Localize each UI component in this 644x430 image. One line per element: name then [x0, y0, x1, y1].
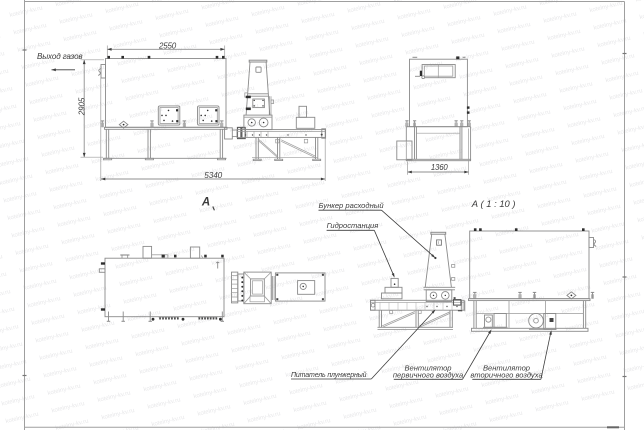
svg-text:kotelny-kv.ru: kotelny-kv.ru	[0, 174, 33, 187]
svg-text:kotelny-kv.ru: kotelny-kv.ru	[55, 419, 89, 430]
svg-text:kotelny-kv.ru: kotelny-kv.ru	[25, 75, 59, 88]
svg-text:kotelny-kv.ru: kotelny-kv.ru	[367, 89, 401, 102]
svg-text:kotelny-kv.ru: kotelny-kv.ru	[359, 54, 393, 67]
svg-text:kotelny-kv.ru: kotelny-kv.ru	[591, 221, 625, 234]
svg-text:kotelny-kv.ru: kotelny-kv.ru	[467, 103, 501, 116]
svg-text:kotelny-kv.ru: kotelny-kv.ru	[581, 389, 615, 402]
svg-text:kotelny-kv.ru: kotelny-kv.ru	[63, 30, 97, 43]
svg-text:kotelny-kv.ru: kotelny-kv.ru	[541, 214, 575, 227]
svg-text:kotelny-kv.ru: kotelny-kv.ru	[47, 384, 81, 397]
svg-text:kotelny-kv.ru: kotelny-kv.ru	[291, 180, 325, 193]
svg-text:kotelny-kv.ru: kotelny-kv.ru	[625, 158, 644, 171]
svg-text:kotelny-kv.ru: kotelny-kv.ru	[435, 386, 469, 399]
svg-text:kotelny-kv.ru: kotelny-kv.ru	[589, 1, 623, 14]
svg-text:kotelny-kv.ru: kotelny-kv.ru	[73, 285, 107, 298]
svg-text:kotelny-kv.ru: kotelny-kv.ru	[521, 127, 555, 140]
svg-text:kotelny-kv.ru: kotelny-kv.ru	[91, 152, 125, 165]
svg-text:kotelny-kv.ru: kotelny-kv.ru	[603, 274, 637, 287]
svg-text:kotelny-kv.ru: kotelny-kv.ru	[307, 250, 341, 263]
svg-text:kotelny-kv.ru: kotelny-kv.ru	[0, 34, 1, 47]
svg-text:kotelny-kv.ru: kotelny-kv.ru	[101, 408, 135, 421]
svg-text:kotelny-kv.ru: kotelny-kv.ru	[639, 8, 644, 21]
svg-text:kotelny-kv.ru: kotelny-kv.ru	[0, 139, 25, 152]
svg-text:kotelny-kv.ru: kotelny-kv.ru	[535, 400, 569, 413]
svg-text:kotelny-kv.ru: kotelny-kv.ru	[119, 275, 153, 288]
svg-text:kotelny-kv.ru: kotelny-kv.ru	[239, 376, 273, 389]
svg-text:kotelny-kv.ru: kotelny-kv.ru	[209, 33, 243, 46]
svg-text:kotelny-kv.ru: kotelny-kv.ru	[405, 43, 439, 56]
svg-text:kotelny-kv.ru: kotelny-kv.ru	[519, 330, 553, 343]
svg-text:kotelny-kv.ru: kotelny-kv.ru	[57, 215, 91, 228]
svg-text:kotelny-kv.ru: kotelny-kv.ru	[317, 82, 351, 95]
svg-text:kotelny-kv.ru: kotelny-kv.ru	[491, 208, 525, 221]
svg-text:kotelny-kv.ru: kotelny-kv.ru	[495, 225, 529, 238]
svg-text:kotelny-kv.ru: kotelny-kv.ru	[389, 397, 423, 410]
svg-text:kotelny-kv.ru: kotelny-kv.ru	[111, 240, 145, 253]
svg-text:kotelny-kv.ru: kotelny-kv.ru	[393, 414, 427, 427]
svg-text:kotelny-kv.ru: kotelny-kv.ru	[351, 19, 385, 32]
svg-text:kotelny-kv.ru: kotelny-kv.ru	[605, 71, 639, 84]
svg-text:А ( 1 : 10 ): А ( 1 : 10 )	[471, 198, 516, 209]
svg-text:kotelny-kv.ru: kotelny-kv.ru	[457, 271, 491, 284]
svg-text:kotelny-kv.ru: kotelny-kv.ru	[449, 236, 483, 249]
svg-text:Выход газов: Выход газов	[37, 52, 83, 61]
svg-text:kotelny-kv.ru: kotelny-kv.ru	[0, 342, 23, 355]
svg-text:kotelny-kv.ru: kotelny-kv.ru	[247, 0, 281, 1]
svg-text:kotelny-kv.ru: kotelny-kv.ru	[353, 239, 387, 252]
svg-text:kotelny-kv.ru: kotelny-kv.ru	[627, 379, 644, 392]
svg-text:kotelny-kv.ru: kotelny-kv.ru	[0, 272, 7, 285]
svg-text:kotelny-kv.ru: kotelny-kv.ru	[229, 121, 263, 134]
svg-text:kotelny-kv.ru: kotelny-kv.ru	[113, 37, 147, 50]
svg-text:kotelny-kv.ru: kotelny-kv.ru	[357, 257, 391, 270]
svg-text:kotelny-kv.ru: kotelny-kv.ru	[99, 187, 133, 200]
svg-text:A: A	[201, 196, 210, 208]
svg-text:kotelny-kv.ru: kotelny-kv.ru	[75, 82, 109, 95]
svg-text:kotelny-kv.ru: kotelny-kv.ru	[423, 334, 457, 347]
svg-text:kotelny-kv.ru: kotelny-kv.ru	[0, 86, 13, 99]
svg-text:kotelny-kv.ru: kotelny-kv.ru	[511, 295, 545, 308]
svg-text:kotelny-kv.ru: kotelny-kv.ru	[147, 397, 181, 410]
svg-text:kotelny-kv.ru: kotelny-kv.ru	[315, 285, 349, 298]
svg-text:первичного воздуха: первичного воздуха	[393, 371, 463, 380]
svg-text:kotelny-kv.ru: kotelny-kv.ru	[81, 320, 115, 333]
svg-text:kotelny-kv.ru: kotelny-kv.ru	[451, 33, 485, 46]
svg-text:kotelny-kv.ru: kotelny-kv.ru	[531, 383, 565, 396]
svg-text:kotelny-kv.ru: kotelny-kv.ru	[635, 0, 644, 4]
svg-text:kotelny-kv.ru: kotelny-kv.ru	[397, 8, 431, 21]
svg-text:kotelny-kv.ru: kotelny-kv.ru	[329, 134, 363, 147]
svg-text:kotelny-kv.ru: kotelny-kv.ru	[197, 404, 231, 417]
svg-text:kotelny-kv.ru: kotelny-kv.ru	[223, 306, 257, 319]
svg-text:kotelny-kv.ru: kotelny-kv.ru	[613, 106, 644, 119]
svg-text:kotelny-kv.ru: kotelny-kv.ru	[411, 281, 445, 294]
svg-text:kotelny-kv.ru: kotelny-kv.ru	[501, 39, 535, 52]
svg-text:kotelny-kv.ru: kotelny-kv.ru	[77, 303, 111, 316]
svg-text:kotelny-kv.ru: kotelny-kv.ru	[287, 162, 321, 175]
svg-text:kotelny-kv.ru: kotelny-kv.ru	[123, 292, 157, 305]
svg-text:kotelny-kv.ru: kotelny-kv.ru	[443, 421, 477, 430]
svg-text:kotelny-kv.ru: kotelny-kv.ru	[325, 117, 359, 130]
svg-text:kotelny-kv.ru: kotelny-kv.ru	[131, 327, 165, 340]
svg-text:kotelny-kv.ru: kotelny-kv.ru	[533, 179, 567, 192]
svg-text:kotelny-kv.ru: kotelny-kv.ru	[0, 377, 31, 390]
svg-text:Гидростанция: Гидростанция	[327, 221, 379, 230]
svg-text:kotelny-kv.ru: kotelny-kv.ru	[15, 244, 49, 257]
svg-text:kotelny-kv.ru: kotelny-kv.ru	[217, 68, 251, 81]
svg-text:kotelny-kv.ru: kotelny-kv.ru	[277, 331, 311, 344]
svg-text:kotelny-kv.ru: kotelny-kv.ru	[45, 163, 79, 176]
svg-text:kotelny-kv.ru: kotelny-kv.ru	[155, 9, 189, 22]
svg-text:kotelny-kv.ru: kotelny-kv.ru	[447, 15, 481, 28]
svg-text:kotelny-kv.ru: kotelny-kv.ru	[185, 352, 219, 365]
svg-text:kotelny-kv.ru: kotelny-kv.ru	[505, 57, 539, 70]
svg-text:kotelny-kv.ru: kotelny-kv.ru	[609, 88, 643, 101]
svg-text:kotelny-kv.ru: kotelny-kv.ru	[193, 387, 227, 400]
svg-text:kotelny-kv.ru: kotelny-kv.ru	[479, 155, 513, 168]
svg-text:kotelny-kv.ru: kotelny-kv.ru	[549, 249, 583, 262]
svg-text:kotelny-kv.ru: kotelny-kv.ru	[611, 309, 644, 322]
svg-text:kotelny-kv.ru: kotelny-kv.ru	[313, 64, 347, 77]
svg-text:kotelny-kv.ru: kotelny-kv.ru	[187, 149, 221, 162]
svg-text:kotelny-kv.ru: kotelny-kv.ru	[547, 29, 581, 42]
svg-text:kotelny-kv.ru: kotelny-kv.ru	[323, 320, 357, 333]
svg-text:kotelny-kv.ru: kotelny-kv.ru	[97, 390, 131, 403]
svg-text:kotelny-kv.ru: kotelny-kv.ru	[0, 307, 15, 320]
svg-text:kotelny-kv.ru: kotelny-kv.ru	[103, 205, 137, 218]
svg-text:kotelny-kv.ru: kotelny-kv.ru	[69, 268, 103, 281]
svg-text:2905: 2905	[78, 97, 87, 116]
svg-text:kotelny-kv.ru: kotelny-kv.ru	[183, 131, 217, 144]
svg-text:kotelny-kv.ru: kotelny-kv.ru	[499, 243, 533, 256]
svg-text:kotelny-kv.ru: kotelny-kv.ru	[233, 138, 267, 151]
svg-text:kotelny-kv.ru: kotelny-kv.ru	[139, 362, 173, 375]
svg-text:kotelny-kv.ru: kotelny-kv.ru	[509, 74, 543, 87]
svg-text:kotelny-kv.ru: kotelny-kv.ru	[441, 201, 475, 214]
svg-text:kotelny-kv.ru: kotelny-kv.ru	[41, 145, 75, 158]
svg-text:kotelny-kv.ru: kotelny-kv.ru	[0, 104, 17, 117]
svg-text:kotelny-kv.ru: kotelny-kv.ru	[385, 379, 419, 392]
svg-text:kotelny-kv.ru: kotelny-kv.ru	[339, 390, 373, 403]
svg-text:kotelny-kv.ru: kotelny-kv.ru	[243, 394, 277, 407]
svg-text:kotelny-kv.ru: kotelny-kv.ru	[257, 243, 291, 256]
svg-text:kotelny-kv.ru: kotelny-kv.ru	[273, 313, 307, 326]
svg-text:kotelny-kv.ru: kotelny-kv.ru	[0, 121, 21, 134]
svg-text:kotelny-kv.ru: kotelny-kv.ru	[27, 296, 61, 309]
svg-text:kotelny-kv.ru: kotelny-kv.ru	[0, 289, 11, 302]
svg-text:kotelny-kv.ru: kotelny-kv.ru	[95, 170, 129, 183]
svg-text:kotelny-kv.ru: kotelny-kv.ru	[3, 191, 37, 204]
svg-text:kotelny-kv.ru: kotelny-kv.ru	[513, 92, 547, 105]
svg-text:kotelny-kv.ru: kotelny-kv.ru	[171, 79, 205, 92]
svg-text:kotelny-kv.ru: kotelny-kv.ru	[537, 197, 571, 210]
svg-text:kotelny-kv.ru: kotelny-kv.ru	[485, 393, 519, 406]
svg-text:kotelny-kv.ru: kotelny-kv.ru	[373, 327, 407, 340]
svg-text:kotelny-kv.ru: kotelny-kv.ru	[245, 191, 279, 204]
svg-text:kotelny-kv.ru: kotelny-kv.ru	[577, 372, 611, 385]
svg-text:kotelny-kv.ru: kotelny-kv.ru	[425, 131, 459, 144]
svg-text:kotelny-kv.ru: kotelny-kv.ru	[437, 183, 471, 196]
svg-text:kotelny-kv.ru: kotelny-kv.ru	[305, 29, 339, 42]
svg-text:kotelny-kv.ru: kotelny-kv.ru	[39, 349, 73, 362]
svg-text:kotelny-kv.ru: kotelny-kv.ru	[263, 57, 297, 70]
svg-text:kotelny-kv.ru: kotelny-kv.ru	[575, 151, 609, 164]
svg-text:kotelny-kv.ru: kotelny-kv.ru	[203, 219, 237, 232]
svg-text:kotelny-kv.ru: kotelny-kv.ru	[565, 319, 599, 332]
svg-text:kotelny-kv.ru: kotelny-kv.ru	[0, 254, 3, 267]
svg-text:kotelny-kv.ru: kotelny-kv.ru	[525, 144, 559, 157]
svg-text:kotelny-kv.ru: kotelny-kv.ru	[0, 51, 5, 64]
svg-text:kotelny-kv.ru: kotelny-kv.ru	[529, 162, 563, 175]
svg-text:5340: 5340	[204, 171, 222, 180]
svg-text:kotelny-kv.ru: kotelny-kv.ru	[421, 113, 455, 126]
svg-text:kotelny-kv.ru: kotelny-kv.ru	[377, 344, 411, 357]
svg-text:kotelny-kv.ru: kotelny-kv.ru	[601, 53, 635, 66]
svg-text:kotelny-kv.ru: kotelny-kv.ru	[61, 233, 95, 246]
svg-text:kotelny-kv.ru: kotelny-kv.ru	[391, 194, 425, 207]
svg-text:kotelny-kv.ru: kotelny-kv.ru	[271, 92, 305, 105]
svg-text:kotelny-kv.ru: kotelny-kv.ru	[375, 124, 409, 137]
svg-text:kotelny-kv.ru: kotelny-kv.ru	[471, 120, 505, 133]
svg-text:kotelny-kv.ru: kotelny-kv.ru	[311, 267, 345, 280]
svg-text:kotelny-kv.ru: kotelny-kv.ru	[275, 110, 309, 123]
svg-text:kotelny-kv.ru: kotelny-kv.ru	[31, 314, 65, 327]
svg-text:kotelny-kv.ru: kotelny-kv.ru	[567, 116, 601, 129]
svg-text:kotelny-kv.ru: kotelny-kv.ru	[253, 226, 287, 239]
svg-text:kotelny-kv.ru: kotelny-kv.ru	[395, 211, 429, 224]
svg-text:kotelny-kv.ru: kotelny-kv.ru	[51, 401, 85, 414]
svg-text:kotelny-kv.ru: kotelny-kv.ru	[289, 383, 323, 396]
svg-text:kotelny-kv.ru: kotelny-kv.ru	[143, 380, 177, 393]
svg-text:kotelny-kv.ru: kotelny-kv.ru	[37, 128, 71, 141]
svg-text:kotelny-kv.ru: kotelny-kv.ru	[159, 26, 193, 39]
svg-text:kotelny-kv.ru: kotelny-kv.ru	[599, 256, 633, 269]
svg-text:kotelny-kv.ru: kotelny-kv.ru	[571, 134, 605, 147]
svg-text:kotelny-kv.ru: kotelny-kv.ru	[9, 5, 43, 18]
svg-text:kotelny-kv.ru: kotelny-kv.ru	[461, 288, 495, 301]
svg-text:kotelny-kv.ru: kotelny-kv.ru	[475, 138, 509, 151]
svg-text:kotelny-kv.ru: kotelny-kv.ru	[523, 348, 557, 361]
svg-text:kotelny-kv.ru: kotelny-kv.ru	[497, 22, 531, 35]
svg-text:kotelny-kv.ru: kotelny-kv.ru	[173, 299, 207, 312]
svg-text:kotelny-kv.ru: kotelny-kv.ru	[319, 302, 353, 315]
svg-text:kotelny-kv.ru: kotelny-kv.ru	[341, 187, 375, 200]
svg-text:kotelny-kv.ru: kotelny-kv.ru	[53, 198, 87, 211]
svg-text:kotelny-kv.ru: kotelny-kv.ru	[553, 267, 587, 280]
svg-text:kotelny-kv.ru: kotelny-kv.ru	[331, 355, 365, 368]
svg-text:kotelny-kv.ru: kotelny-kv.ru	[393, 0, 427, 4]
svg-text:kotelny-kv.ru: kotelny-kv.ru	[251, 5, 285, 18]
svg-text:kotelny-kv.ru: kotelny-kv.ru	[189, 369, 223, 382]
svg-text:2550: 2550	[158, 41, 177, 50]
svg-text:kotelny-kv.ru: kotelny-kv.ru	[551, 46, 585, 59]
svg-text:kotelny-kv.ru: kotelny-kv.ru	[557, 284, 591, 297]
svg-text:kotelny-kv.ru: kotelny-kv.ru	[369, 309, 403, 322]
svg-text:kotelny-kv.ru: kotelny-kv.ru	[121, 72, 155, 85]
svg-text:kotelny-kv.ru: kotelny-kv.ru	[157, 229, 191, 242]
svg-text:kotelny-kv.ru: kotelny-kv.ru	[347, 1, 381, 14]
svg-text:Питатель плунжерный: Питатель плунжерный	[291, 371, 367, 379]
svg-text:kotelny-kv.ru: kotelny-kv.ru	[135, 345, 169, 358]
svg-text:kotelny-kv.ru: kotelny-kv.ru	[153, 212, 187, 225]
svg-text:kotelny-kv.ru: kotelny-kv.ru	[619, 344, 644, 357]
svg-text:kotelny-kv.ru: kotelny-kv.ru	[293, 401, 327, 414]
svg-text:kotelny-kv.ru: kotelny-kv.ru	[303, 232, 337, 245]
svg-text:kotelny-kv.ru: kotelny-kv.ru	[379, 141, 413, 154]
svg-text:kotelny-kv.ru: kotelny-kv.ru	[0, 324, 19, 337]
svg-text:kotelny-kv.ru: kotelny-kv.ru	[87, 135, 121, 148]
svg-text:kotelny-kv.ru: kotelny-kv.ru	[623, 361, 644, 374]
svg-text:kotelny-kv.ru: kotelny-kv.ru	[165, 264, 199, 277]
svg-text:kotelny-kv.ru: kotelny-kv.ru	[141, 159, 175, 172]
svg-text:kotelny-kv.ru: kotelny-kv.ru	[633, 193, 644, 206]
svg-text:kotelny-kv.ru: kotelny-kv.ru	[43, 366, 77, 379]
svg-text:kotelny-kv.ru: kotelny-kv.ru	[583, 186, 617, 199]
svg-text:kotelny-kv.ru: kotelny-kv.ru	[151, 415, 185, 428]
svg-text:kotelny-kv.ru: kotelny-kv.ru	[265, 278, 299, 291]
svg-text:kotelny-kv.ru: kotelny-kv.ru	[29, 93, 63, 106]
svg-text:kotelny-kv.ru: kotelny-kv.ru	[587, 204, 621, 217]
svg-text:kotelny-kv.ru: kotelny-kv.ru	[489, 411, 523, 424]
svg-text:kotelny-kv.ru: kotelny-kv.ru	[563, 99, 597, 112]
svg-text:kotelny-kv.ru: kotelny-kv.ru	[149, 194, 183, 207]
svg-text:kotelny-kv.ru: kotelny-kv.ru	[247, 411, 281, 424]
svg-text:kotelny-kv.ru: kotelny-kv.ru	[617, 123, 644, 136]
svg-text:kotelny-kv.ru: kotelny-kv.ru	[507, 278, 541, 291]
svg-text:kotelny-kv.ru: kotelny-kv.ru	[241, 173, 275, 186]
svg-text:kotelny-kv.ru: kotelny-kv.ru	[387, 176, 421, 189]
svg-text:kotelny-kv.ru: kotelny-kv.ru	[363, 71, 397, 84]
svg-text:kotelny-kv.ru: kotelny-kv.ru	[65, 250, 99, 263]
svg-text:kotelny-kv.ru: kotelny-kv.ru	[181, 334, 215, 347]
svg-text:kotelny-kv.ru: kotelny-kv.ru	[401, 26, 435, 39]
svg-text:kotelny-kv.ru: kotelny-kv.ru	[151, 0, 185, 5]
svg-text:kotelny-kv.ru: kotelny-kv.ru	[371, 106, 405, 119]
svg-text:kotelny-kv.ru: kotelny-kv.ru	[593, 18, 627, 31]
svg-text:kotelny-kv.ru: kotelny-kv.ru	[309, 47, 343, 60]
svg-text:kotelny-kv.ru: kotelny-kv.ru	[343, 407, 377, 420]
svg-text:kotelny-kv.ru: kotelny-kv.ru	[249, 208, 283, 221]
svg-text:kotelny-kv.ru: kotelny-kv.ru	[615, 326, 644, 339]
svg-text:kotelny-kv.ru: kotelny-kv.ru	[455, 50, 489, 63]
svg-text:kotelny-kv.ru: kotelny-kv.ru	[35, 331, 69, 344]
svg-text:kotelny-kv.ru: kotelny-kv.ru	[463, 85, 497, 98]
svg-text:kotelny-kv.ru: kotelny-kv.ru	[107, 222, 141, 235]
svg-text:kotelny-kv.ru: kotelny-kv.ru	[333, 152, 367, 165]
svg-text:kotelny-kv.ru: kotelny-kv.ru	[201, 422, 235, 430]
svg-text:kotelny-kv.ru: kotelny-kv.ru	[89, 355, 123, 368]
svg-text:kotelny-kv.ru: kotelny-kv.ru	[0, 359, 27, 372]
svg-text:kotelny-kv.ru: kotelny-kv.ru	[137, 142, 171, 155]
svg-text:kotelny-kv.ru: kotelny-kv.ru	[5, 412, 39, 425]
svg-text:вторичного воздуха: вторичного воздуха	[470, 371, 542, 380]
svg-text:kotelny-kv.ru: kotelny-kv.ru	[125, 89, 159, 102]
svg-text:kotelny-kv.ru: kotelny-kv.ru	[211, 254, 245, 267]
svg-text:kotelny-kv.ru: kotelny-kv.ru	[321, 99, 355, 112]
svg-text:kotelny-kv.ru: kotelny-kv.ru	[205, 16, 239, 29]
svg-text:kotelny-kv.ru: kotelny-kv.ru	[545, 232, 579, 245]
svg-text:kotelny-kv.ru: kotelny-kv.ru	[403, 246, 437, 259]
svg-text:kotelny-kv.ru: kotelny-kv.ru	[573, 354, 607, 367]
svg-text:kotelny-kv.ru: kotelny-kv.ru	[417, 96, 451, 109]
svg-text:kotelny-kv.ru: kotelny-kv.ru	[23, 279, 57, 292]
svg-text:kotelny-kv.ru: kotelny-kv.ru	[115, 257, 149, 270]
svg-text:kotelny-kv.ru: kotelny-kv.ru	[167, 61, 201, 74]
svg-text:kotelny-kv.ru: kotelny-kv.ru	[225, 103, 259, 116]
svg-text:kotelny-kv.ru: kotelny-kv.ru	[301, 12, 335, 25]
svg-text:kotelny-kv.ru: kotelny-kv.ru	[105, 2, 139, 15]
svg-text:kotelny-kv.ru: kotelny-kv.ru	[11, 226, 45, 239]
svg-text:kotelny-kv.ru: kotelny-kv.ru	[267, 75, 301, 88]
svg-text:Бункер расходный: Бункер расходный	[319, 201, 385, 210]
svg-text:1360: 1360	[431, 163, 448, 172]
svg-text:kotelny-kv.ru: kotelny-kv.ru	[413, 78, 447, 91]
svg-text:kotelny-kv.ru: kotelny-kv.ru	[33, 110, 67, 123]
svg-text:kotelny-kv.ru: kotelny-kv.ru	[355, 36, 389, 49]
svg-text:kotelny-kv.ru: kotelny-kv.ru	[13, 23, 47, 36]
svg-text:kotelny-kv.ru: kotelny-kv.ru	[493, 4, 527, 17]
svg-text:kotelny-kv.ru: kotelny-kv.ru	[235, 359, 269, 372]
svg-text:kotelny-kv.ru: kotelny-kv.ru	[83, 117, 117, 130]
svg-text:kotelny-kv.ru: kotelny-kv.ru	[195, 184, 229, 197]
svg-text:kotelny-kv.ru: kotelny-kv.ru	[543, 11, 577, 24]
svg-text:kotelny-kv.ru: kotelny-kv.ru	[629, 176, 644, 189]
svg-text:kotelny-kv.ru: kotelny-kv.ru	[361, 274, 395, 287]
svg-text:kotelny-kv.ru: kotelny-kv.ru	[1, 394, 35, 407]
svg-text:kotelny-kv.ru: kotelny-kv.ru	[93, 373, 127, 386]
svg-text:kotelny-kv.ru: kotelny-kv.ru	[483, 173, 517, 186]
svg-text:kotelny-kv.ru: kotelny-kv.ru	[637, 211, 644, 224]
svg-text:kotelny-kv.ru: kotelny-kv.ru	[281, 348, 315, 361]
svg-text:kotelny-kv.ru: kotelny-kv.ru	[407, 264, 441, 277]
svg-text:kotelny-kv.ru: kotelny-kv.ru	[297, 418, 331, 430]
svg-text:kotelny-kv.ru: kotelny-kv.ru	[71, 65, 105, 78]
svg-text:kotelny-kv.ru: kotelny-kv.ru	[327, 337, 361, 350]
svg-text:kotelny-kv.ru: kotelny-kv.ru	[207, 236, 241, 249]
svg-text:kotelny-kv.ru: kotelny-kv.ru	[569, 337, 603, 350]
svg-text:kotelny-kv.ru: kotelny-kv.ru	[85, 338, 119, 351]
svg-text:kotelny-kv.ru: kotelny-kv.ru	[169, 282, 203, 295]
svg-text:kotelny-kv.ru: kotelny-kv.ru	[597, 36, 631, 49]
svg-text:kotelny-kv.ru: kotelny-kv.ru	[459, 68, 493, 81]
svg-text:kotelny-kv.ru: kotelny-kv.ru	[59, 12, 93, 25]
svg-text:kotelny-kv.ru: kotelny-kv.ru	[555, 64, 589, 77]
svg-text:kotelny-kv.ru: kotelny-kv.ru	[337, 169, 371, 182]
svg-text:kotelny-kv.ru: kotelny-kv.ru	[259, 40, 293, 53]
svg-text:kotelny-kv.ru: kotelny-kv.ru	[49, 180, 83, 193]
svg-text:kotelny-kv.ru: kotelny-kv.ru	[559, 81, 593, 94]
svg-text:kotelny-kv.ru: kotelny-kv.ru	[439, 404, 473, 417]
svg-text:kotelny-kv.ru: kotelny-kv.ru	[227, 324, 261, 337]
svg-text:kotelny-kv.ru: kotelny-kv.ru	[255, 22, 289, 35]
svg-text:kotelny-kv.ru: kotelny-kv.ru	[579, 169, 613, 182]
svg-text:kotelny-kv.ru: kotelny-kv.ru	[231, 341, 265, 354]
svg-text:kotelny-kv.ru: kotelny-kv.ru	[0, 69, 9, 82]
svg-text:kotelny-kv.ru: kotelny-kv.ru	[517, 109, 551, 122]
svg-text:kotelny-kv.ru: kotelny-kv.ru	[109, 19, 143, 32]
svg-text:kotelny-kv.ru: kotelny-kv.ru	[503, 260, 537, 273]
